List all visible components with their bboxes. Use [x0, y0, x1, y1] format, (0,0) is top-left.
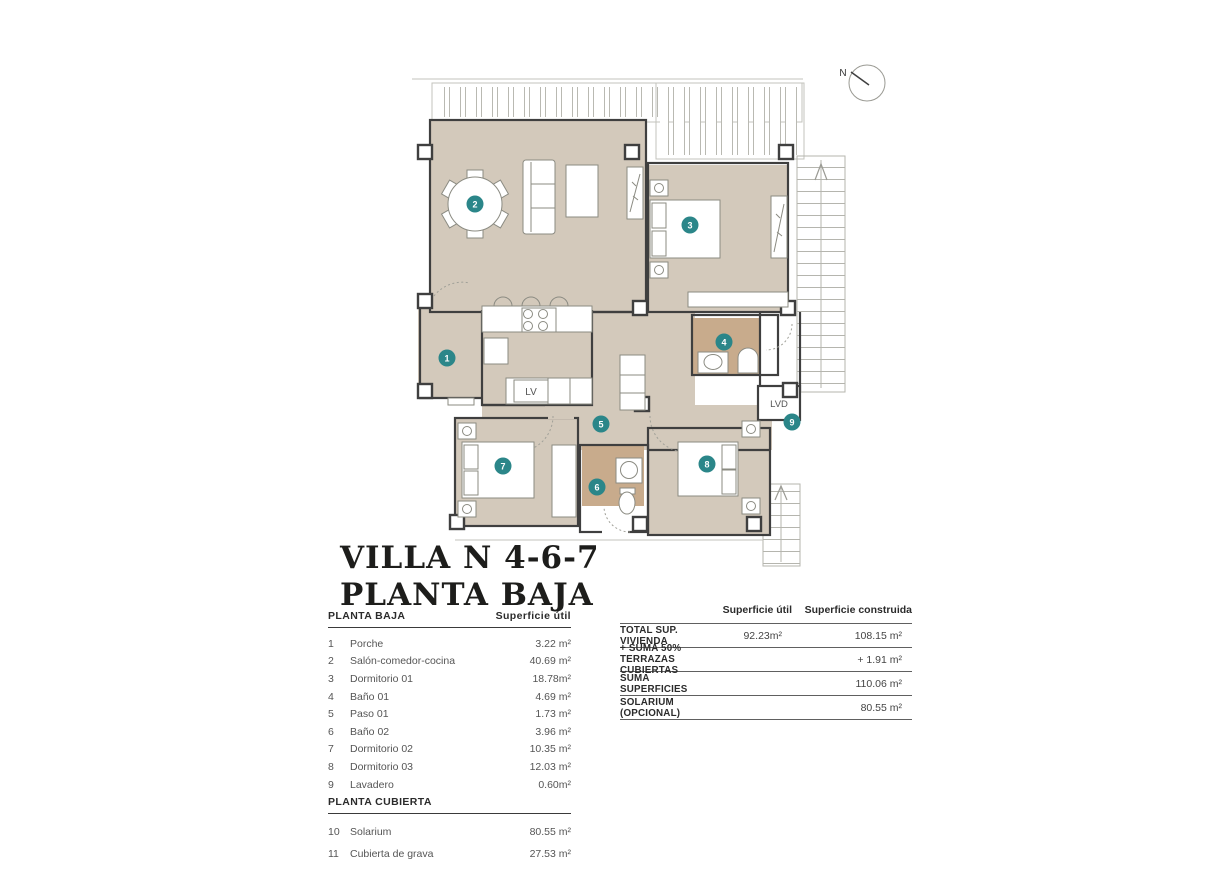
floor-name: PLANTA BAJA	[340, 577, 600, 614]
section-title: PLANTA CUBIERTA	[328, 796, 432, 808]
page-title: VILLA N 4-6-7 PLANTA BAJA	[340, 540, 600, 614]
column-header-construida: Superficie construida	[792, 604, 912, 616]
svg-text:4: 4	[721, 338, 726, 348]
table-row: 3Dormitorio 0118.78m²	[328, 670, 571, 688]
exterior-staircase	[797, 156, 845, 392]
hall-closet	[620, 355, 645, 410]
table-row: 1Porche3.22 m²	[328, 635, 571, 653]
room-marker: 3	[682, 217, 699, 234]
svg-text:3: 3	[687, 221, 692, 231]
areas-rows-cubierta: 10Solarium80.55 m² 11Cubierta de grava27…	[328, 821, 571, 865]
summary-table: Superficie útil Superficie construida TO…	[620, 604, 912, 720]
room-marker: 6	[589, 479, 606, 496]
compass: N	[839, 65, 885, 101]
coffee-table	[566, 165, 598, 217]
summary-rows: TOTAL SUP. VIVIENDA92.23m²108.15 m² + SU…	[620, 623, 912, 720]
section-title: PLANTA BAJA	[328, 610, 405, 622]
svg-text:9: 9	[789, 418, 794, 428]
porch-step	[448, 398, 474, 405]
areas-rows: 1Porche3.22 m² 2Salón-comedor-cocina40.6…	[328, 635, 571, 793]
areas-table-header: PLANTA BAJA Superficie útil	[328, 610, 571, 628]
svg-text:6: 6	[594, 483, 599, 493]
cabinet	[627, 167, 643, 219]
table-row: SOLARIUM (OPCIONAL)80.55 m²	[620, 695, 912, 719]
room-marker: 2	[467, 196, 484, 213]
svg-text:7: 7	[500, 462, 505, 472]
svg-text:1: 1	[444, 354, 449, 364]
areas-table-header-cubierta: PLANTA CUBIERTA	[328, 796, 571, 814]
table-row: 7Dormitorio 0210.35 m²	[328, 741, 571, 759]
floor-plan-page: LV LVD 1 2 3 4 5 6 7 8 9 N VILLA N 4-6-7…	[0, 0, 1220, 870]
summary-table-header: Superficie útil Superficie construida	[620, 604, 912, 623]
compass-north-label: N	[839, 68, 846, 79]
table-row: 9Lavadero0.60m²	[328, 776, 571, 794]
column-header-util: Superficie útil	[700, 604, 792, 616]
svg-text:2: 2	[472, 200, 477, 210]
table-row: SUMA SUPERFICIES110.06 m²	[620, 671, 912, 695]
room-marker: 1	[439, 350, 456, 367]
laundry-label: LVD	[770, 399, 788, 410]
floor-plan-drawing: LV LVD 1 2 3 4 5 6 7 8 9 N	[398, 48, 898, 578]
svg-text:5: 5	[598, 420, 603, 430]
table-row: 5Paso 011.73 m²	[328, 705, 571, 723]
column-header-util: Superficie útil	[496, 610, 571, 622]
table-row: 2Salón-comedor-cocina40.69 m²	[328, 653, 571, 671]
svg-text:8: 8	[704, 460, 709, 470]
sofa	[523, 160, 555, 234]
table-row: 11Cubierta de grava27.53 m²	[328, 843, 571, 865]
room-marker: 9	[784, 414, 801, 431]
table-row: 10Solarium80.55 m²	[328, 821, 571, 843]
table-row: + SUMA 50% TERRAZAS CUBIERTAS+ 1.91 m²	[620, 647, 912, 671]
bathroom-01-fixtures	[698, 348, 758, 373]
table-row: 4Baño 014.69 m²	[328, 688, 571, 706]
closet	[688, 292, 788, 307]
wardrobe-dormitorio-02	[552, 445, 576, 517]
table-row: 6Baño 023.96 m²	[328, 723, 571, 741]
dishwasher-label: LV	[525, 387, 537, 398]
wardrobe-dormitorio-01	[771, 196, 787, 258]
room-marker: 4	[716, 334, 733, 351]
areas-table: PLANTA BAJA Superficie útil 1Porche3.22 …	[328, 610, 571, 865]
table-row: 8Dormitorio 0312.03 m²	[328, 758, 571, 776]
room-marker: 7	[495, 458, 512, 475]
villa-name: VILLA N 4-6-7	[340, 540, 600, 577]
room-marker: 8	[699, 456, 716, 473]
room-marker: 5	[593, 416, 610, 433]
